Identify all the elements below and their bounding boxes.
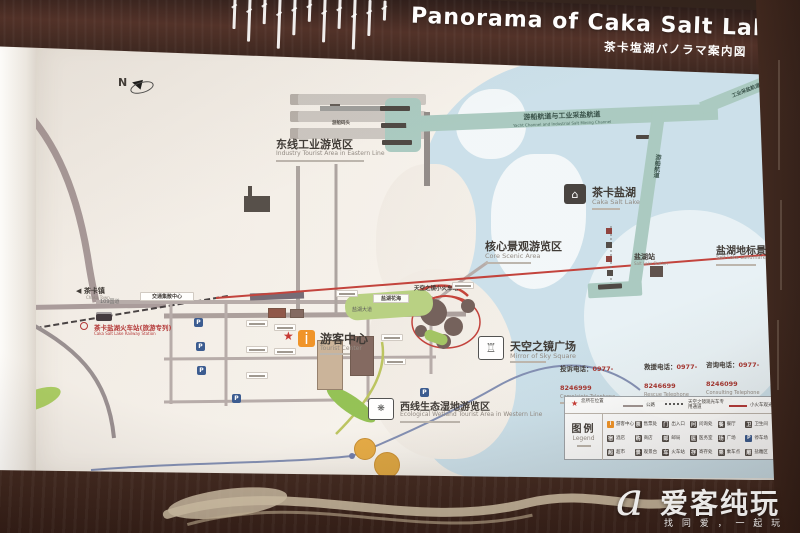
- legend-item-label: 售票处: [644, 422, 658, 427]
- watermark-logo: a: [616, 474, 643, 524]
- legend-item: 医医务室: [690, 431, 718, 445]
- dotted-line-symbol: [665, 403, 685, 405]
- viewpoint-marker: [606, 228, 612, 234]
- legend-item-label: 出入口: [671, 422, 685, 427]
- map-board: 东线工业游览区 Industry Tourist Area in Eastern…: [36, 34, 778, 480]
- legend-item: 卫卫生间: [745, 417, 773, 431]
- parking-icon: P: [197, 366, 206, 375]
- board-title-en: Panorama of Caka Salt Lake: [411, 4, 785, 43]
- grid-road: [164, 400, 336, 402]
- yanhu-avenue-label: 盐湖大道: [352, 306, 372, 313]
- legend-item: 门出入口: [662, 417, 690, 431]
- red-line-symbol: [729, 405, 747, 407]
- you-are-here-star: ★: [283, 329, 294, 343]
- flower-sea-label: 盐湖花海: [381, 295, 401, 302]
- wall-script-mark: [777, 320, 779, 390]
- viewpoint-marker: [607, 270, 613, 276]
- legend-line-star: ★ 您所在位置: [571, 399, 604, 408]
- legend-item-icon: 医: [690, 435, 697, 442]
- legend-item-icon: 邮: [662, 435, 669, 442]
- legend-item: 问问询处: [690, 417, 718, 431]
- phone-label-zh: 投诉电话：: [560, 365, 593, 373]
- legend-item-icon: 雕: [745, 449, 752, 456]
- west-zone-label-en: Ecological Wetland Tourist Area in Weste…: [400, 411, 542, 418]
- small-label-chip: [274, 348, 296, 355]
- wetland-icon: ❋: [368, 398, 394, 420]
- legend-item: 车火车站: [662, 445, 690, 459]
- sky-square-icon: ♖: [478, 336, 504, 360]
- legend-item-label: 盐雕区: [754, 450, 768, 455]
- legend-item-icon: 乘: [718, 449, 725, 456]
- legend-item: 乘乘车点: [718, 445, 746, 459]
- west-zone-sub-script: [400, 421, 460, 423]
- core-zone-label-en: Core Scenic Area: [485, 252, 540, 260]
- landmark-zone-sub-script: [716, 264, 756, 266]
- sightseeing-train-line: [216, 254, 778, 298]
- legend-item-label: 邮局: [671, 436, 680, 441]
- legend-item-icon: 存: [690, 449, 697, 456]
- legend-item-label: 广场: [727, 436, 736, 441]
- parking-icon: P: [420, 388, 429, 397]
- legend-item-label: 火车站: [671, 450, 685, 455]
- watermark-slogan: 找 同 爱 ， 一 起 玩: [664, 516, 783, 529]
- west-highway-road: [36, 92, 96, 302]
- viewpoint-marker: [606, 242, 612, 248]
- small-label-chip: [381, 334, 403, 341]
- train-icon: [96, 312, 112, 321]
- legend-box: ★ 您所在位置 公路 天空之镜观光车专用通道 小火车观光通道 图例 Legend: [564, 396, 774, 460]
- east-zone-sub-script: [276, 160, 364, 162]
- g109-road: [36, 305, 166, 308]
- mongolian-script: [232, 0, 404, 55]
- board-title-ja: 茶卡塩湖パノラマ案内図: [604, 39, 747, 60]
- legend-item-label: 问询处: [699, 422, 713, 427]
- legend-item-icon: P: [745, 435, 752, 442]
- wall-left: [0, 0, 38, 533]
- legend-item-icon: 超: [607, 449, 614, 456]
- legend-line-label: 公路: [646, 403, 655, 408]
- star-icon: ★: [571, 399, 578, 408]
- small-label-chip: [452, 282, 474, 289]
- legend-item-label: 观景台: [644, 450, 658, 455]
- watermark: a 爱客纯玩 找 同 爱 ， 一 起 玩: [616, 478, 800, 533]
- wall-script-mark: [780, 200, 782, 290]
- legend-line-label: 天空之镜观光车专用通道: [688, 400, 727, 410]
- legend-item-label: 游客中心: [616, 422, 634, 427]
- viewpoint-marker: [606, 256, 612, 262]
- legend-item: 存寄存处: [690, 445, 718, 459]
- salt-sculpture-blob: [461, 299, 475, 313]
- legend-item-icon: 问: [690, 421, 697, 428]
- transport-hub-label: 交通集散中心: [152, 293, 182, 300]
- parking-icon: P: [232, 394, 241, 403]
- legend-item-icon: 门: [662, 421, 669, 428]
- ship-icon: [380, 106, 410, 111]
- small-label-chip: [246, 346, 268, 353]
- legend-item: 超超市: [607, 445, 635, 459]
- ship-icon: [382, 140, 412, 145]
- caka-lake-label-en: Caka Salt Lake: [592, 198, 640, 206]
- small-label-chip: [336, 290, 358, 297]
- small-label-chip: [246, 320, 268, 327]
- east-zone-label-en: Industry Tourist Area in Eastern Line: [276, 150, 385, 157]
- signboard-photo: 东线工业游览区 Industry Tourist Area in Eastern…: [0, 0, 800, 533]
- legend-title-zh: 图例: [565, 420, 602, 435]
- legend-item: 邮邮局: [662, 431, 690, 445]
- sky-square-sub-script: [510, 361, 546, 363]
- legend-item: 购商店: [635, 431, 663, 445]
- flower-sea-chip: 盐湖花海: [373, 294, 409, 303]
- legend-item: 雕盐雕区: [745, 445, 773, 459]
- legend-item-label: 超市: [616, 450, 625, 455]
- legend-item: 票售票处: [635, 417, 663, 431]
- legend-item-icon: 车: [662, 449, 669, 456]
- phone-consulting: 咨询电话：0977-8246099 Consulting Telephone: [706, 352, 778, 400]
- legend-sub-script: [577, 445, 591, 447]
- phone-label-zh: 救援电话：: [644, 363, 677, 371]
- legend-item-label: 餐厅: [727, 422, 736, 427]
- salt-lake-icon: ⌂: [564, 184, 586, 204]
- legend-item-icon: 宿: [607, 435, 614, 442]
- legend-item-label: 乘车点: [727, 450, 741, 455]
- legend-line-label: 您所在位置: [581, 399, 604, 408]
- pond-circle: [354, 438, 376, 460]
- legend-item-icon: 餐: [718, 421, 725, 428]
- legend-item-icon: 票: [635, 421, 642, 428]
- route-node: [349, 453, 355, 459]
- compass-n-label: N: [118, 76, 127, 89]
- info-icon: i: [298, 330, 315, 347]
- tourist-center-label-en: Tourist Center: [320, 345, 362, 352]
- salt-sculpture-blob: [444, 317, 463, 336]
- legend-item: 景观景台: [635, 445, 663, 459]
- legend-item-label: 寄存处: [699, 450, 713, 455]
- legend-item-label: 停车场: [754, 436, 768, 441]
- yacht-wharf-label: 游船码头: [332, 120, 350, 126]
- legend-item-label: 卫生间: [754, 422, 768, 427]
- salt-lake-station-icon: [650, 266, 663, 277]
- g109-label: 109国道: [100, 298, 120, 305]
- tourist-center-sub-script: [320, 353, 350, 355]
- legend-item-icon: 卫: [745, 421, 752, 428]
- legend-item-label: 酒店: [616, 436, 625, 441]
- railway-station-label-en: Caka Salt Lake Railway Station: [94, 331, 156, 336]
- legend-line-road: 公路: [623, 403, 655, 408]
- legend-item-icon: 购: [635, 435, 642, 442]
- salt-lake-station-label-en: Salt Lake Station: [634, 261, 668, 266]
- road-line-symbol: [623, 405, 643, 407]
- legend-item-icon: 景: [635, 449, 642, 456]
- factory-icon: [244, 196, 270, 212]
- legend-item: 场广场: [718, 431, 746, 445]
- building-red: [268, 308, 286, 318]
- legend-item: 餐餐厅: [718, 417, 746, 431]
- factory-chimney-icon: [248, 186, 252, 198]
- legend-grid: i游客中心 票售票处 门出入口 问问询处 餐餐厅 卫卫生间 宿酒店 购商店 邮邮…: [607, 417, 773, 459]
- legend-item: P停车场: [745, 431, 773, 445]
- legend-item-label: 商店: [644, 436, 653, 441]
- legend-item: i游客中心: [607, 417, 635, 431]
- caka-lake-sub-script: [592, 208, 620, 210]
- legend-line-red: 小火车观光通道: [729, 403, 778, 408]
- phone-label-zh: 咨询电话：: [706, 361, 739, 369]
- legend-title-cell: 图例 Legend: [565, 414, 603, 460]
- legend-item-icon: 场: [718, 435, 725, 442]
- small-label-chip: [384, 358, 406, 365]
- legend-item-icon: i: [607, 421, 614, 428]
- legend-line-dotted: 天空之镜观光车专用通道: [665, 400, 727, 410]
- building-small: [290, 309, 304, 318]
- small-label-chip: [246, 372, 268, 379]
- parking-icon: P: [194, 318, 203, 327]
- parking-icon: P: [196, 342, 205, 351]
- core-zone-sub-script: [485, 262, 531, 264]
- wall-script-mark: [778, 60, 780, 170]
- legend-title-en: Legend: [565, 435, 602, 442]
- pond-circle: [374, 452, 400, 478]
- transport-hub-chip: 交通集散中心: [140, 292, 194, 301]
- legend-item: 宿酒店: [607, 431, 635, 445]
- legend-item-label: 医务室: [699, 436, 713, 441]
- station-ring-icon: [80, 322, 88, 330]
